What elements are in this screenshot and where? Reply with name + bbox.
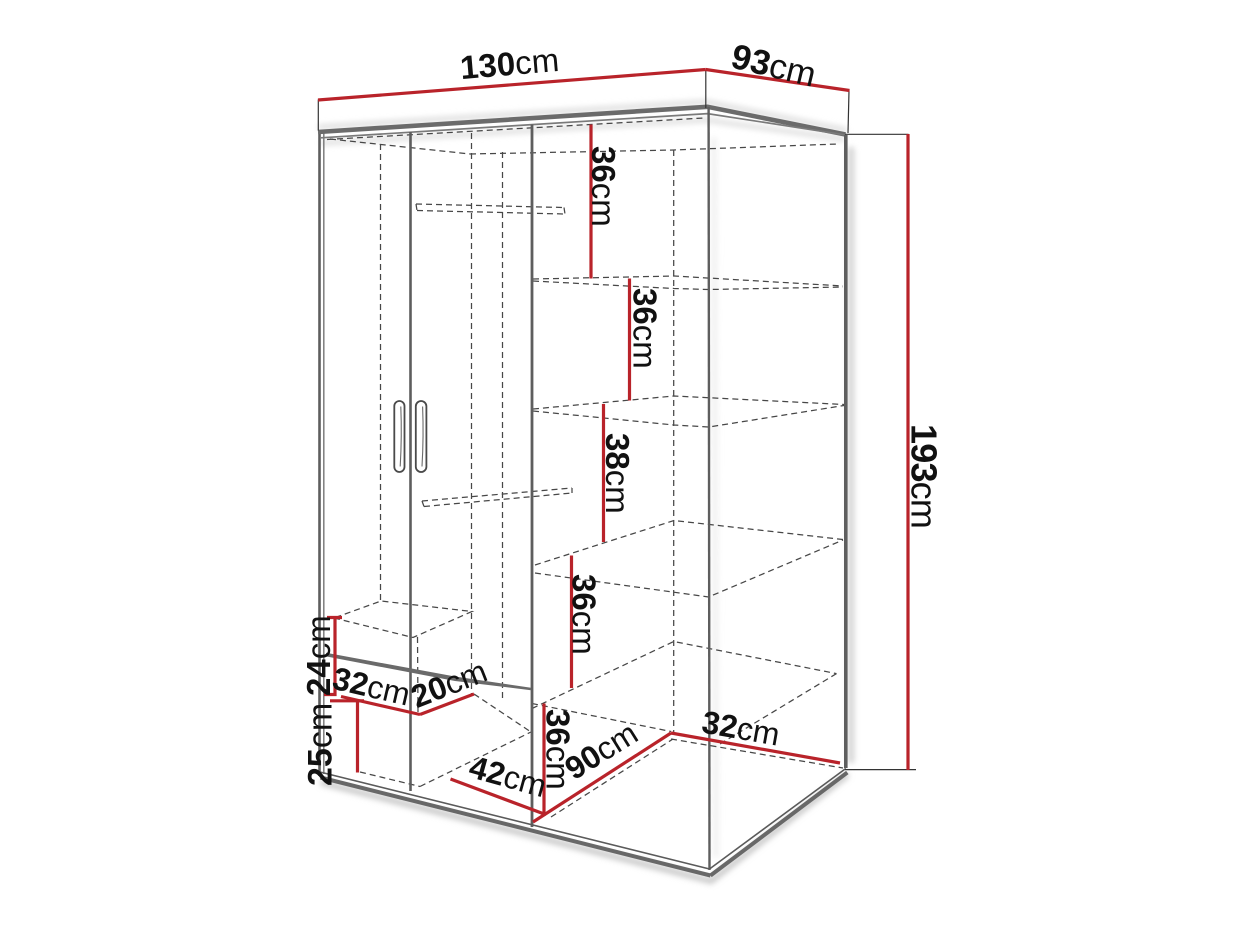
svg-text:36cm: 36cm bbox=[627, 288, 664, 369]
svg-text:38cm: 38cm bbox=[599, 433, 636, 514]
svg-text:36cm: 36cm bbox=[566, 574, 603, 655]
svg-text:25cm: 25cm bbox=[302, 703, 340, 786]
svg-text:36cm: 36cm bbox=[585, 146, 622, 227]
svg-text:193cm: 193cm bbox=[904, 424, 945, 528]
